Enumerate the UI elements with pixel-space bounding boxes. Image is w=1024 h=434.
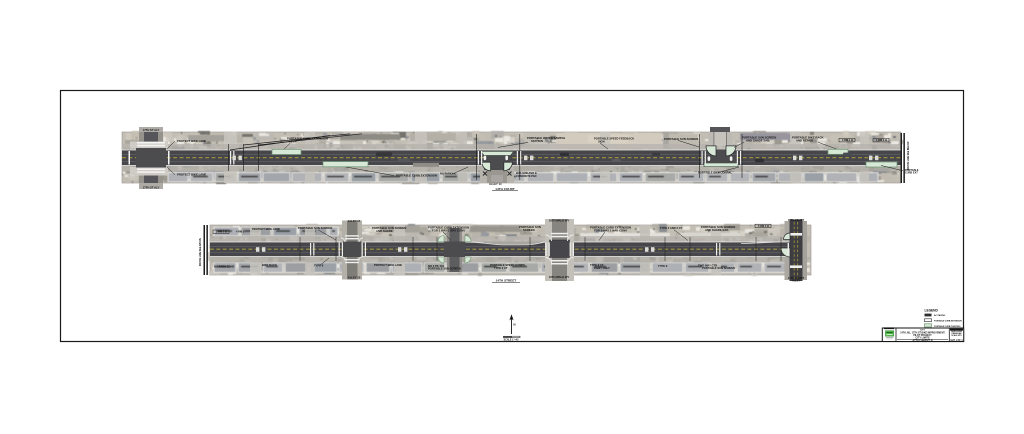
svg-text:TYPE II: TYPE II <box>658 264 668 268</box>
svg-text:TYPE II: TYPE II <box>314 264 324 268</box>
svg-text:PORTABLE SUN SCREEN: PORTABLE SUN SCREEN <box>428 267 461 271</box>
svg-text:SIGN: SIGN <box>598 139 605 143</box>
svg-text:LEGEND: LEGEND <box>925 308 939 312</box>
svg-text:CURB EXT: CURB EXT <box>905 172 918 175</box>
svg-text:BIKE RACK: BIKE RACK <box>262 263 277 267</box>
svg-text:AC PAVING: AC PAVING <box>934 314 946 317</box>
svg-text:PORTABLE SUN SCREEN: PORTABLE SUN SCREEN <box>702 266 735 270</box>
svg-text:AND SHADE SAIL: AND SHADE SAIL <box>746 139 770 143</box>
svg-text:SCALE 1"=40: SCALE 1"=40 <box>504 339 519 342</box>
svg-text:PROTECT BIKE LANE: PROTECT BIKE LANE <box>374 263 402 267</box>
svg-text:STATION: STATION <box>531 139 543 143</box>
svg-text:17TH COURT: 17TH COURT <box>788 218 805 222</box>
svg-text:PORTABLE SUN SCREEN: PORTABLE SUN SCREEN <box>664 137 698 141</box>
svg-text:PROTECT BIKE LANE: PROTECT BIKE LANE <box>177 173 206 177</box>
svg-text:NO PARKING: NO PARKING <box>440 172 456 176</box>
svg-text:17TH ST ALY: 17TH ST ALY <box>143 186 160 190</box>
svg-text:16TH WALK WY: 16TH WALK WY <box>549 219 570 223</box>
svg-text:FOR 2 WAY 1 WAY CONV: FOR 2 WAY 1 WAY CONV <box>594 228 627 232</box>
svg-text:MATCH LINE SEE BELOW: MATCH LINE SEE BELOW <box>907 141 910 170</box>
svg-text:PORTABLE SUN SCREEN: PORTABLE SUN SCREEN <box>298 226 332 230</box>
svg-text:ALLEY 14: ALLEY 14 <box>489 182 502 186</box>
svg-text:AND SHADE SAIL: AND SHADE SAIL <box>705 228 729 232</box>
svg-text:SHT 1 OF 1: SHT 1 OF 1 <box>950 340 963 342</box>
svg-text:ALLEY 15: ALLEY 15 <box>348 275 361 279</box>
svg-text:TYPE 2 CT: TYPE 2 CT <box>494 266 508 270</box>
svg-text:ALLEY 15: ALLEY 15 <box>348 219 361 223</box>
svg-text:N: N <box>513 322 515 326</box>
svg-text:AND SHADE: AND SHADE <box>376 229 393 233</box>
svg-text:CONCRETE PAD: CONCRETE PAD <box>516 174 537 178</box>
svg-text:14TH COURT: 14TH COURT <box>495 187 515 191</box>
svg-text:CITY: CITY <box>920 330 926 332</box>
svg-text:TYP: TYP <box>291 140 297 144</box>
svg-text:17TH ST ALY: 17TH ST ALY <box>143 128 160 132</box>
svg-text:PORTABLE BIKE CORRAL: PORTABLE BIKE CORRAL <box>698 170 732 174</box>
svg-text:PORTABLE CURB EXTENSION: PORTABLE CURB EXTENSION <box>934 319 962 322</box>
svg-text:TYPE 2 AND 2 CT: TYPE 2 AND 2 CT <box>660 226 683 230</box>
svg-text:PROTECT BIKE LANE: PROTECT BIKE LANE <box>252 227 280 231</box>
svg-text:PAINT ONLY: PAINT ONLY <box>594 266 610 270</box>
svg-text:4 RM 1: 4 RM 1 <box>236 230 245 234</box>
svg-text:NO PARK ZONE: NO PARK ZONE <box>214 264 235 268</box>
svg-text:14TH STREET: 14TH STREET <box>496 279 517 283</box>
svg-text:PORTABLE CURB PLANTING: PORTABLE CURB PLANTING <box>934 325 961 328</box>
svg-text:ATTACHMENT B: ATTACHMENT B <box>912 338 932 342</box>
svg-text:MATCH LINE SEE ABOVE: MATCH LINE SEE ABOVE <box>199 238 202 266</box>
svg-text:SCALE NTS: SCALE NTS <box>951 334 962 337</box>
svg-text:AND REPAIR: AND REPAIR <box>796 139 813 143</box>
svg-text:ALLEY: ALLEY <box>792 280 800 283</box>
svg-text:PORTABLE CURB EXTENSION: PORTABLE CURB EXTENSION <box>396 173 437 177</box>
svg-text:FOR 2 WAY 1 WAY CONV: FOR 2 WAY 1 WAY CONV <box>432 228 465 232</box>
svg-text:16TH WALK WY: 16TH WALK WY <box>549 275 570 279</box>
svg-text:14TH, ML, 17TH ST BIKE IMPROVE: 14TH, ML, 17TH ST BIKE IMPROVEMENT <box>900 331 945 334</box>
svg-text:SCREEN: SCREEN <box>523 228 535 232</box>
svg-text:PROTECT BIKE LANE: PROTECT BIKE LANE <box>177 139 206 143</box>
